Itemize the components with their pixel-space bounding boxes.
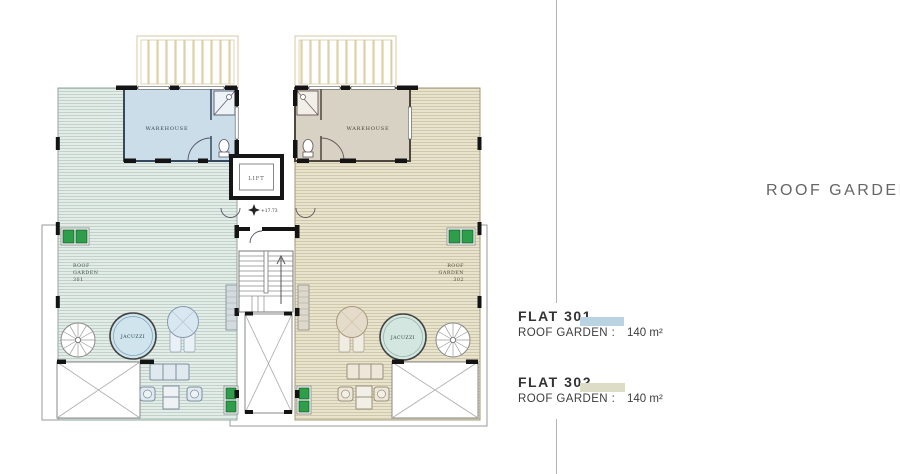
flat-301: WAREHOUSE ROOF GARDEN 301 JACUZZI [56, 36, 239, 420]
wall-segment [262, 227, 295, 231]
pergola-301 [137, 36, 238, 88]
void-301 [57, 362, 140, 418]
toilet-icon [219, 140, 229, 158]
staircase [239, 251, 293, 312]
void-302 [392, 362, 478, 418]
warehouse-301: WAREHOUSE [124, 86, 239, 164]
wall-segment [237, 227, 250, 231]
warehouse-302-label: WAREHOUSE [347, 126, 390, 132]
shower-icon [297, 91, 318, 115]
warehouse-301-label: WAREHOUSE [146, 126, 189, 132]
flat-302: WAREHOUSE ROOF GARDEN 302 JACUZZI [293, 36, 482, 420]
ac-unit-icon [447, 228, 475, 245]
legend-flat-302-row-label: ROOF GARDEN : [518, 393, 615, 405]
jacuzzi-302: JACUZZI [380, 314, 426, 360]
roof-garden-plan-page: WAREHOUSE ROOF GARDEN 301 JACUZZI [0, 0, 900, 474]
jacuzzi-301-label: JACUZZI [120, 334, 145, 340]
louver-unit-301 [226, 285, 237, 330]
central-void [245, 314, 292, 413]
level-label: +17.73 [261, 208, 278, 214]
legend-flat-301-row-label: ROOF GARDEN : [518, 327, 615, 339]
svg-text:GARDEN: GARDEN [73, 270, 98, 276]
svg-text:ROOF: ROOF [447, 263, 464, 269]
spiral-staircase-icon [61, 323, 95, 357]
warehouse-302: WAREHOUSE [293, 86, 411, 164]
pergola-302 [295, 36, 396, 88]
legend-flat-302-area: 140 m² [627, 393, 663, 405]
door-arc [250, 231, 262, 243]
spiral-staircase-icon [436, 323, 470, 357]
louver-unit-302 [298, 285, 309, 330]
svg-text:302: 302 [453, 277, 464, 283]
legend-flat-302-swatch [580, 383, 625, 392]
legend-flat-301-swatch [580, 317, 624, 326]
floor-plan: WAREHOUSE ROOF GARDEN 301 JACUZZI [0, 0, 556, 474]
legend-flat-301-area: 140 m² [627, 327, 663, 339]
toilet-icon [303, 140, 313, 158]
shower-icon [214, 91, 235, 115]
jacuzzi-301: JACUZZI [110, 313, 156, 359]
level-marker: +17.73 [248, 204, 278, 216]
page-title: ROOF GARDEN [766, 182, 900, 200]
ac-unit-icon [61, 228, 89, 245]
svg-text:GARDEN: GARDEN [439, 270, 464, 276]
jacuzzi-302-label: JACUZZI [390, 335, 415, 341]
svg-text:ROOF: ROOF [73, 263, 90, 269]
svg-text:301: 301 [73, 277, 84, 283]
lift: LIFT [231, 156, 282, 198]
lift-label: LIFT [248, 176, 265, 182]
